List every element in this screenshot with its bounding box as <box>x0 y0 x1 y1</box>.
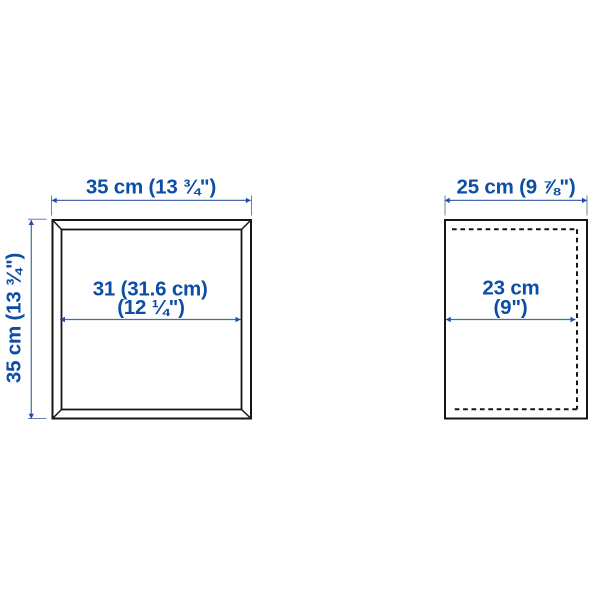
svg-text:(9"): (9") <box>494 296 528 319</box>
svg-text:35 cm (13 ¾"): 35 cm (13 ¾") <box>86 176 216 199</box>
svg-text:(12 ¼"): (12 ¼") <box>117 296 185 319</box>
svg-text:25 cm (9 ⅞"): 25 cm (9 ⅞") <box>457 176 576 199</box>
svg-text:35 cm (13 ¾"): 35 cm (13 ¾") <box>3 253 26 383</box>
